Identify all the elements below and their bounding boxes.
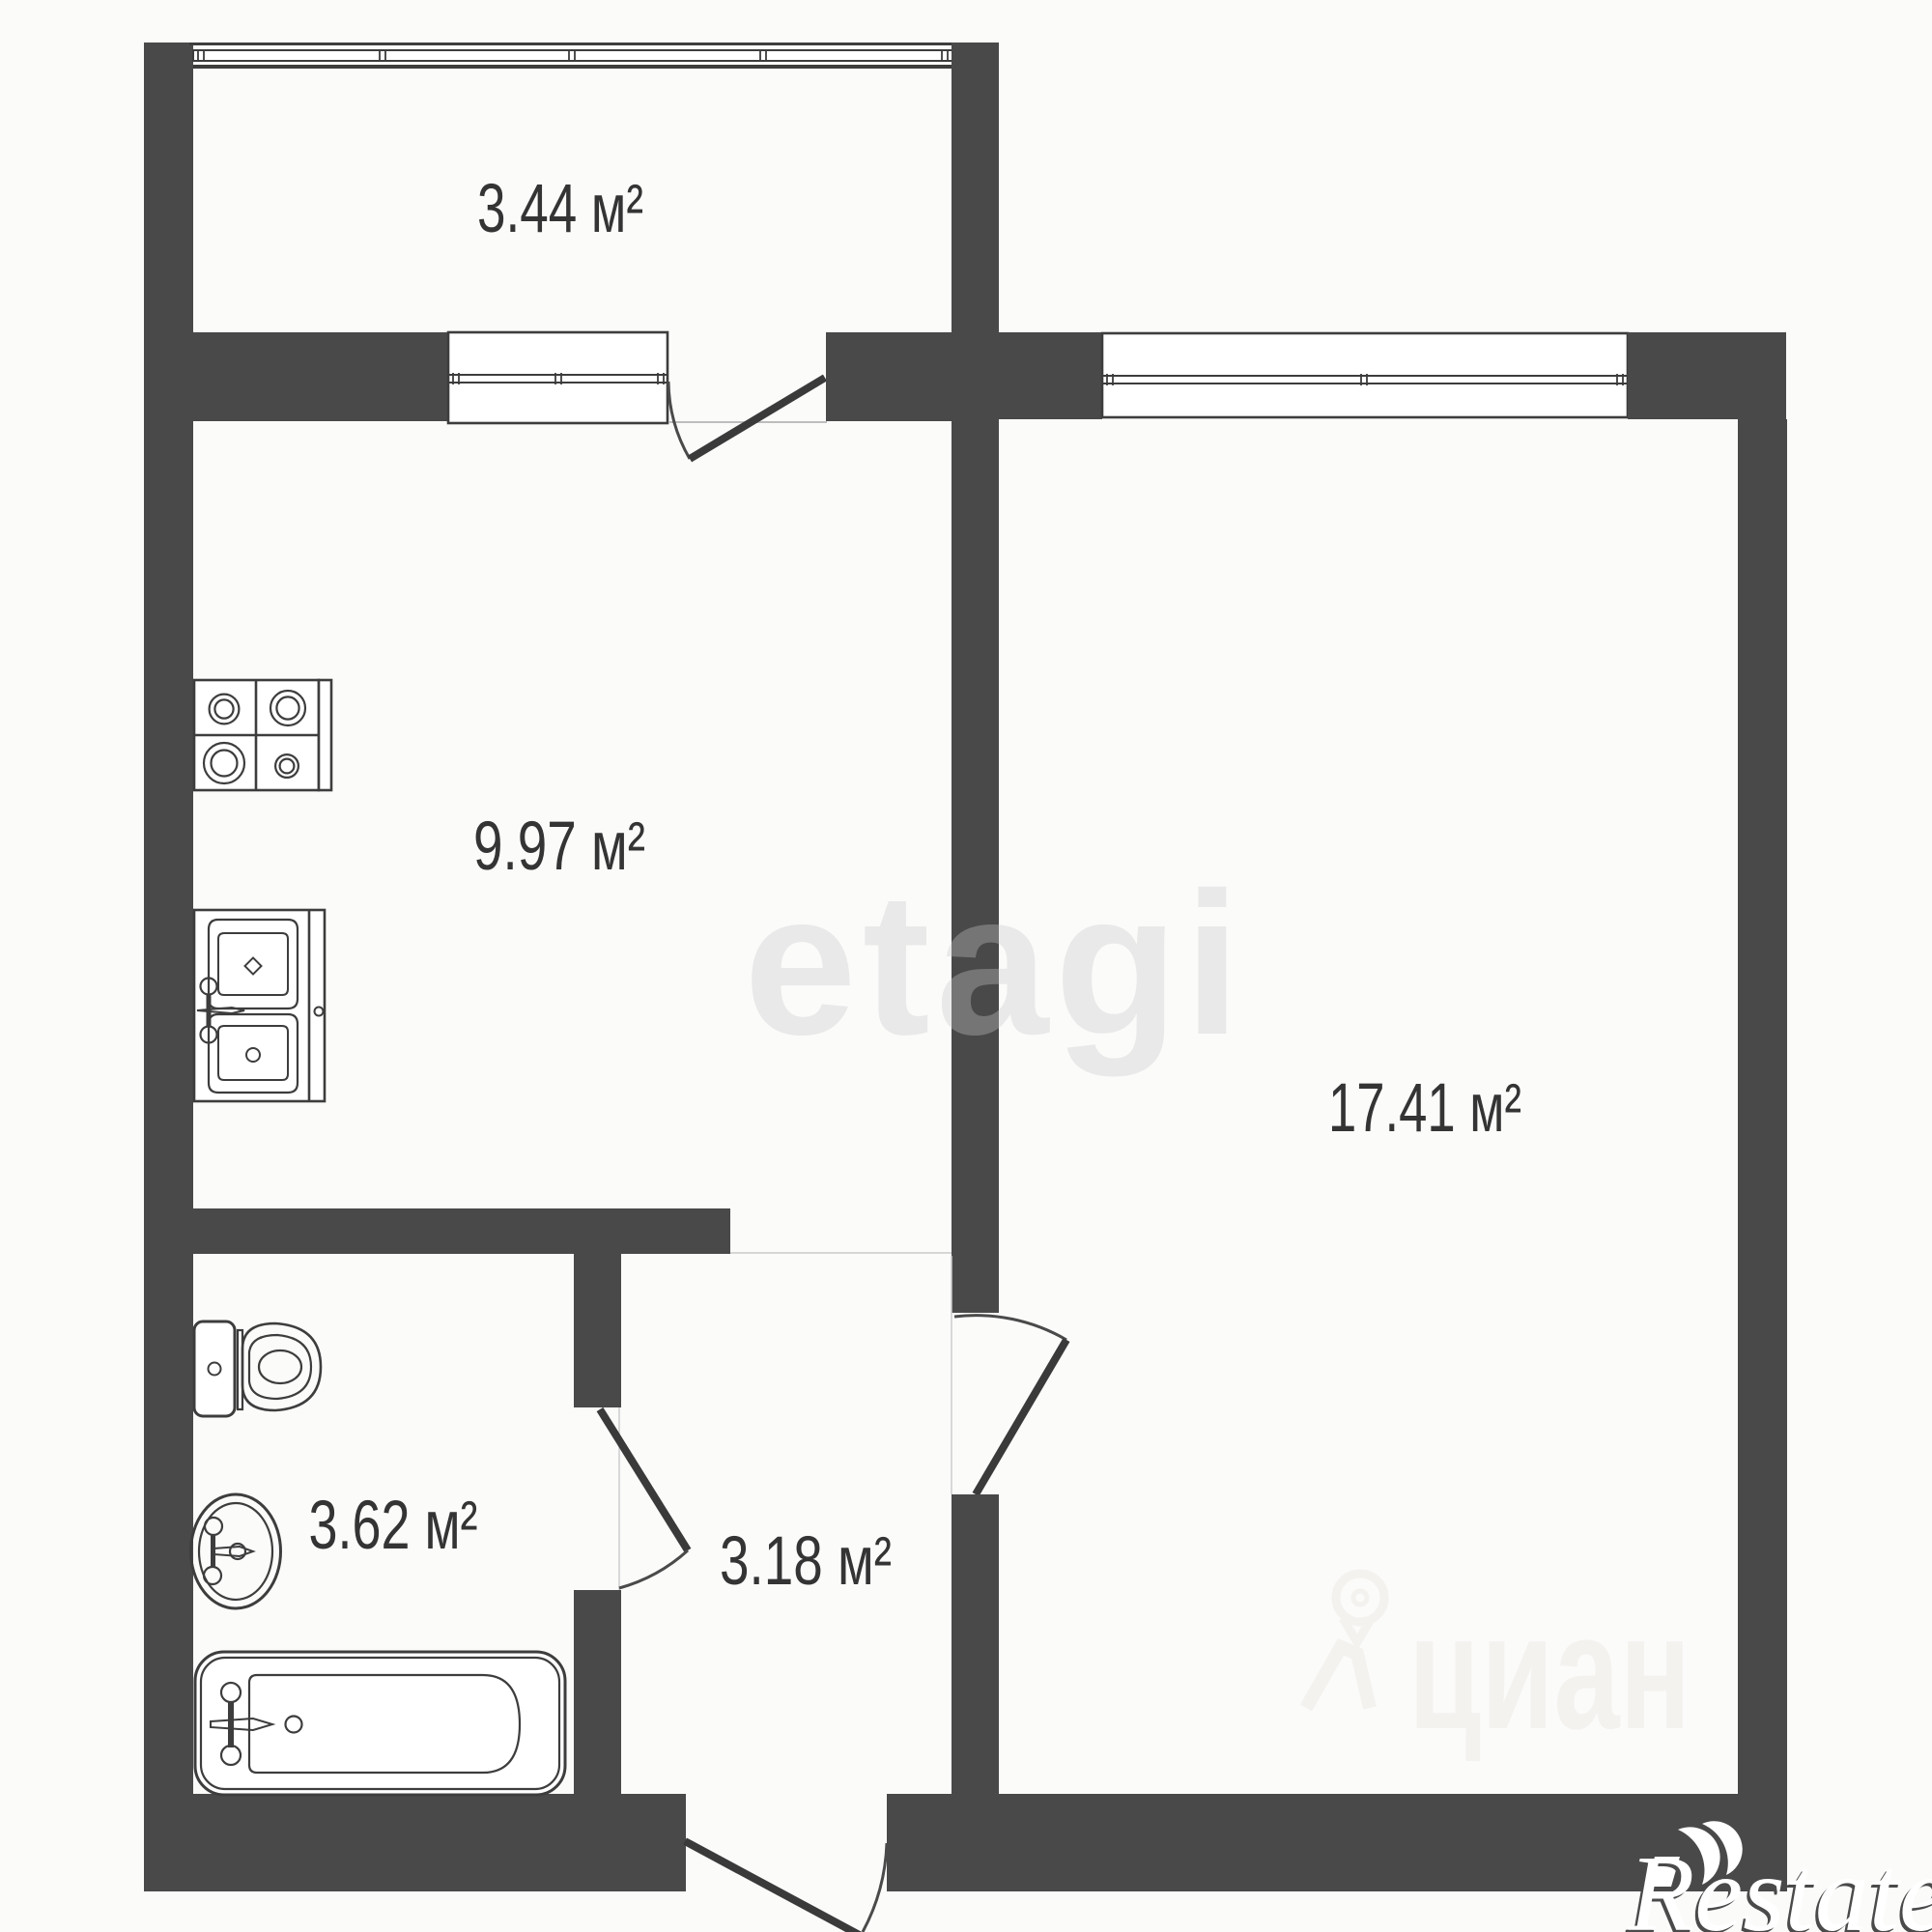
svg-text:17.41 м²: 17.41 м² [1328, 1070, 1521, 1147]
svg-text:3.62 м²: 3.62 м² [309, 1488, 478, 1564]
svg-text:Restate: Restate [1628, 1834, 1932, 1932]
svg-text:3.18 м²: 3.18 м² [720, 1523, 892, 1600]
svg-text:9.97 м²: 9.97 м² [473, 809, 645, 885]
svg-text:etagi: etagi [744, 850, 1246, 1077]
svg-text:циан: циан [1408, 1580, 1690, 1763]
svg-text:3.44 м²: 3.44 м² [477, 171, 643, 247]
